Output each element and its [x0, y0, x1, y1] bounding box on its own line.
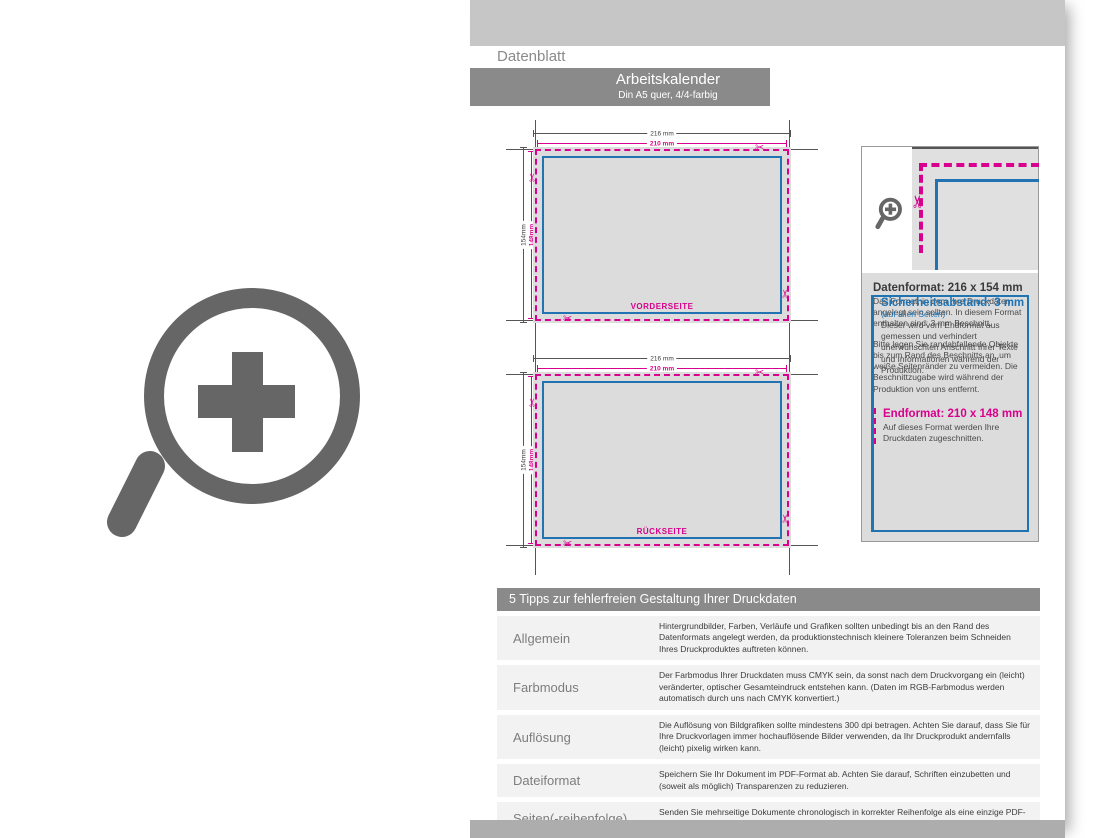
crop-mark [506, 320, 533, 321]
row-label: Allgemein [497, 631, 647, 646]
artboard: VORDERSEITE [533, 147, 791, 323]
scissors-icon: ✂ [563, 539, 572, 550]
crop-mark [535, 120, 536, 149]
crop-mark [506, 149, 533, 150]
scissors-icon: ✂ [755, 143, 764, 154]
crop-mark [789, 345, 790, 374]
datenformat-heading: Datenformat: 216 x 154 mm [873, 282, 1029, 294]
crop-mark [789, 120, 790, 149]
dim-label: 154mm [520, 221, 527, 249]
artboard: RÜCKSEITE [533, 372, 791, 548]
dim-label: 210 mm [647, 365, 677, 372]
zoom-plus-icon [98, 280, 363, 555]
dim-label: 216 mm [647, 130, 676, 137]
sicherheitsabstand-text: Dieser wird vom Endformat aus gemessen u… [881, 320, 1027, 376]
sicherheitsabstand-heading: Sicherheitsabstand: 3 mm [881, 297, 1027, 309]
table-row: Auflösung Die Auflösung von Bildgrafiken… [497, 715, 1040, 759]
row-label: Auflösung [497, 730, 647, 745]
top-band [470, 0, 1065, 46]
crop-mark [535, 546, 536, 575]
crop-mark [789, 546, 790, 575]
crop-mark [535, 345, 536, 374]
row-text: Speichern Sie Ihr Dokument im PDF-Format… [647, 764, 1040, 797]
crop-mark [791, 374, 818, 375]
scissors-icon: ✂ [563, 314, 572, 325]
page-subtitle: Din A5 quer, 4/4-farbig [566, 90, 770, 102]
tips-table: Allgemein Hintergrundbilder, Farben, Ver… [497, 616, 1040, 835]
page-title: Arbeitskalender [566, 68, 770, 90]
width-dimension-inner: 210 mm [537, 368, 787, 369]
crop-mark [506, 374, 533, 375]
scissors-icon: ✂ [910, 194, 927, 208]
scissors-icon: ✂ [528, 173, 539, 182]
datasheet-page: Datenblatt Arbeitskalender Din A5 quer, … [470, 0, 1065, 838]
safety-line [935, 179, 1039, 270]
info-text-panel: Datenformat: 216 x 154 mm Das Format, in… [862, 273, 1038, 541]
datenblatt-tab: Datenblatt [488, 46, 594, 68]
safety-line [542, 156, 782, 314]
sicherheitsabstand-subheading: (auf allen Seiten) [881, 309, 1027, 319]
safety-line [542, 381, 782, 539]
corner-detail-panel: ✂ [862, 147, 1038, 273]
scissors-icon: ✂ [781, 289, 792, 298]
row-label: Dateiformat [497, 773, 647, 788]
format-info-box: ✂ Datenformat: 216 x 154 mm Das Format, … [861, 146, 1039, 542]
height-dimension-outer: 154mm [523, 372, 524, 548]
crop-mark [791, 149, 818, 150]
scissors-icon: ✂ [781, 514, 792, 523]
table-row: Farbmodus Der Farbmodus Ihrer Druckdaten… [497, 665, 1040, 709]
corner-artboard: ✂ [912, 147, 1038, 270]
tips-header: 5 Tipps zur fehlerfreien Gestaltung Ihre… [497, 588, 1040, 611]
scissors-icon: ✂ [755, 368, 764, 379]
table-row: Allgemein Hintergrundbilder, Farben, Ver… [497, 616, 1040, 660]
title-bar: Arbeitskalender Din A5 quer, 4/4-farbig [470, 68, 770, 106]
side-label: RÜCKSEITE [533, 527, 791, 536]
scissors-icon: ✂ [528, 398, 539, 407]
zoom-plus-icon [873, 197, 903, 233]
crop-mark [506, 545, 533, 546]
side-label: VORDERSEITE [533, 302, 791, 311]
width-dimension-outer: 216 mm [533, 358, 791, 359]
sicherheitsabstand-block: Sicherheitsabstand: 3 mm (auf allen Seit… [871, 295, 1029, 532]
width-dimension-inner: 210 mm [537, 143, 787, 144]
height-dimension-outer: 154mm [523, 147, 524, 323]
dim-label: 216 mm [647, 355, 676, 362]
row-text: Hintergrundbilder, Farben, Verläufe und … [647, 616, 1040, 660]
row-label: Farbmodus [497, 680, 647, 695]
table-row: Dateiformat Speichern Sie Ihr Dokument i… [497, 764, 1040, 797]
dim-label: 210 mm [647, 140, 677, 147]
canvas: Datenblatt Arbeitskalender Din A5 quer, … [0, 0, 1117, 838]
dim-label: 154mm [520, 446, 527, 474]
row-text: Der Farbmodus Ihrer Druckdaten muss CMYK… [647, 665, 1040, 709]
width-dimension-outer: 216 mm [533, 133, 791, 134]
crop-mark [791, 320, 818, 321]
crop-mark [791, 545, 818, 546]
bottom-band [470, 820, 1065, 838]
row-text: Die Auflösung von Bildgrafiken sollte mi… [647, 715, 1040, 759]
